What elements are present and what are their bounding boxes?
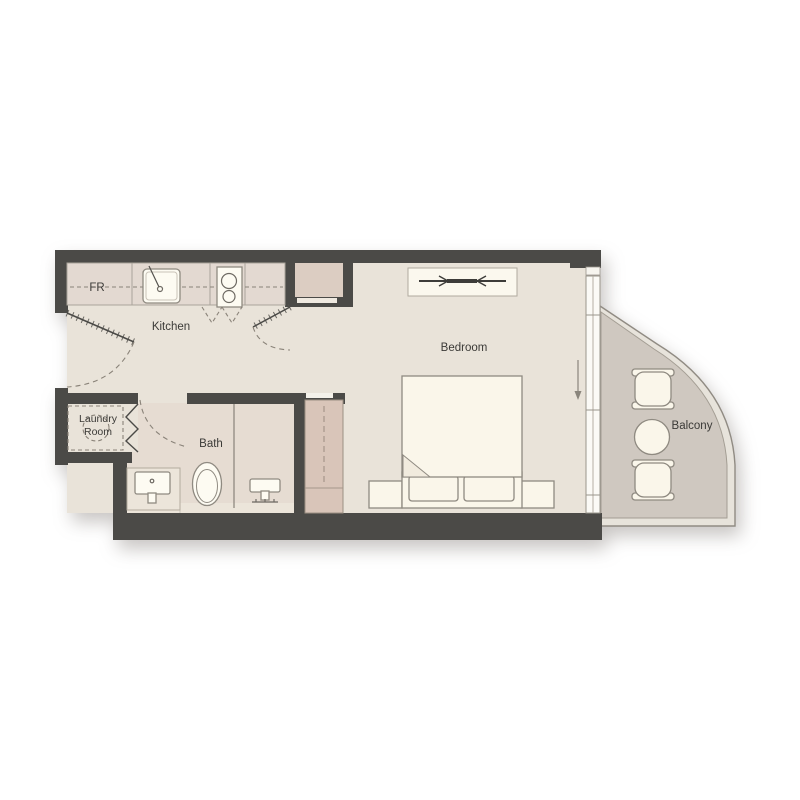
kitchen-sink bbox=[143, 266, 180, 303]
balcony bbox=[600, 306, 735, 526]
cooktop bbox=[217, 267, 242, 307]
utility-niche bbox=[295, 263, 343, 303]
wardrobe bbox=[305, 400, 343, 513]
balcony-table bbox=[635, 420, 670, 455]
wall-left-upper bbox=[55, 250, 68, 313]
window-jamb bbox=[586, 267, 600, 275]
nightstand-right bbox=[521, 481, 554, 508]
balcony-chair bbox=[632, 460, 674, 500]
floor-plan-canvas: FR Kitchen Bedroom Bath Laundry Room Bal… bbox=[0, 0, 800, 800]
wall-bottom bbox=[113, 513, 602, 540]
pillow bbox=[409, 476, 458, 501]
wall-top bbox=[55, 250, 601, 263]
closet-rod-bar bbox=[447, 279, 477, 283]
wall-notch bbox=[306, 393, 333, 398]
niche-fill bbox=[295, 263, 343, 297]
shower-stem bbox=[261, 491, 269, 500]
laundry-label-line1: Laundry bbox=[79, 413, 118, 425]
vanity bbox=[127, 468, 180, 510]
sink-basin bbox=[143, 269, 180, 303]
mattress bbox=[402, 376, 522, 477]
floor-plan: FR Kitchen Bedroom Bath Laundry Room Bal… bbox=[0, 0, 800, 800]
shower-drain bbox=[252, 499, 278, 502]
chair-seat bbox=[635, 463, 671, 497]
vanity-stem bbox=[148, 493, 156, 503]
bedroom-closet bbox=[408, 268, 517, 296]
niche-slot bbox=[297, 298, 337, 303]
toilet bbox=[193, 463, 222, 506]
wall-top-right-stub bbox=[570, 250, 601, 268]
laundry-label-line2: Room bbox=[84, 426, 112, 438]
chair-seat bbox=[635, 372, 671, 406]
wall-laundry-top bbox=[55, 393, 138, 404]
nightstand-left bbox=[369, 481, 402, 508]
wall-bath-wardrobe bbox=[294, 400, 305, 513]
fridge-label: FR bbox=[89, 282, 104, 294]
shower-head bbox=[250, 479, 280, 492]
pillow bbox=[464, 476, 514, 501]
bath-label: Bath bbox=[199, 438, 223, 450]
kitchen-label: Kitchen bbox=[152, 321, 190, 333]
balcony-chair bbox=[632, 369, 674, 409]
bedroom-label: Bedroom bbox=[441, 342, 488, 354]
balcony-label: Balcony bbox=[672, 420, 713, 432]
